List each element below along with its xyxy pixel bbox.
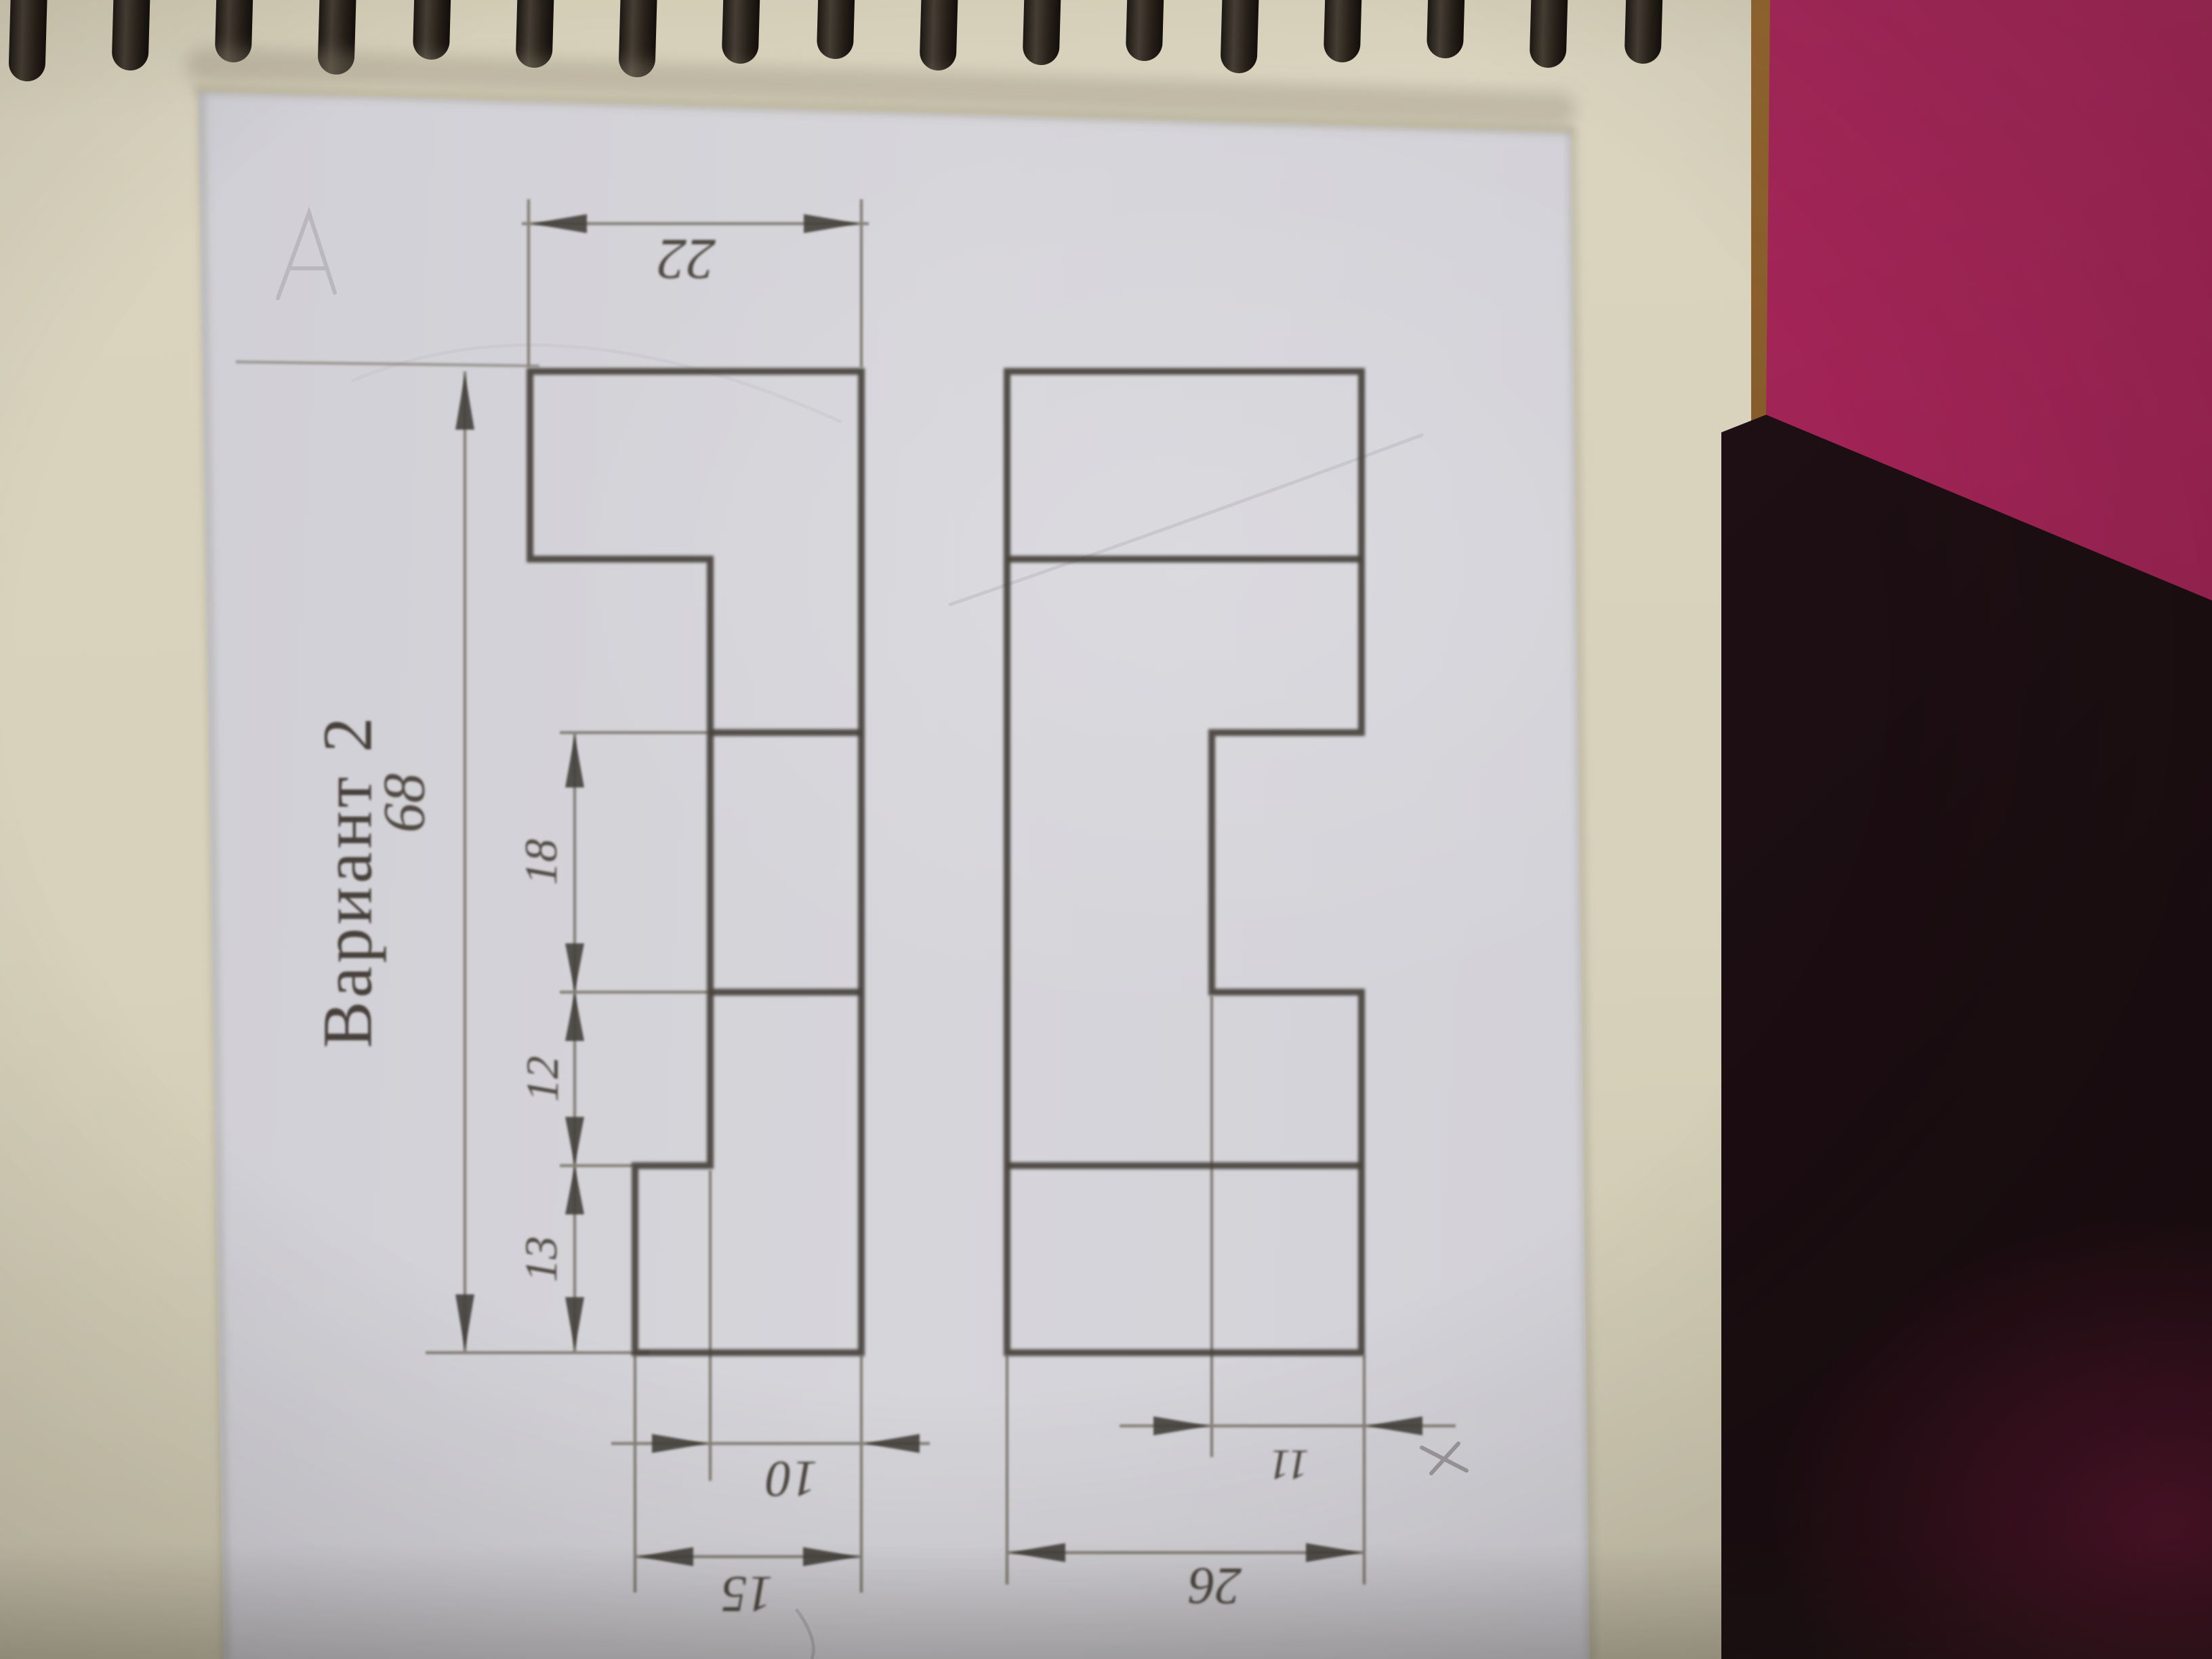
- notebook-photo: 22 68 18 12 13 10 15 11 26 Вариант 2: [0, 0, 2212, 1659]
- dim-10-label: 10: [766, 1450, 817, 1507]
- dim-15-label: 15: [721, 1565, 773, 1622]
- dim-26-label: 26: [1189, 1557, 1242, 1616]
- technical-drawing: 22 68 18 12 13 10 15 11 26 Вариант 2: [0, 0, 2212, 1659]
- dimension-labels: 22 68 18 12 13 10 15 11 26 Вариант 2: [309, 227, 1309, 1622]
- dim-18-label: 18: [515, 839, 567, 885]
- dim-22-label: 22: [657, 227, 716, 292]
- dimension-lines: [236, 199, 1456, 1593]
- variant-title: Вариант 2: [309, 714, 387, 1048]
- scratch-letter-a: [278, 213, 335, 298]
- dim-11-label: 11: [1269, 1441, 1309, 1490]
- dimension-arrows: [455, 214, 1422, 1566]
- dim-12-label: 12: [516, 1056, 568, 1102]
- dim-13-label: 13: [515, 1236, 567, 1282]
